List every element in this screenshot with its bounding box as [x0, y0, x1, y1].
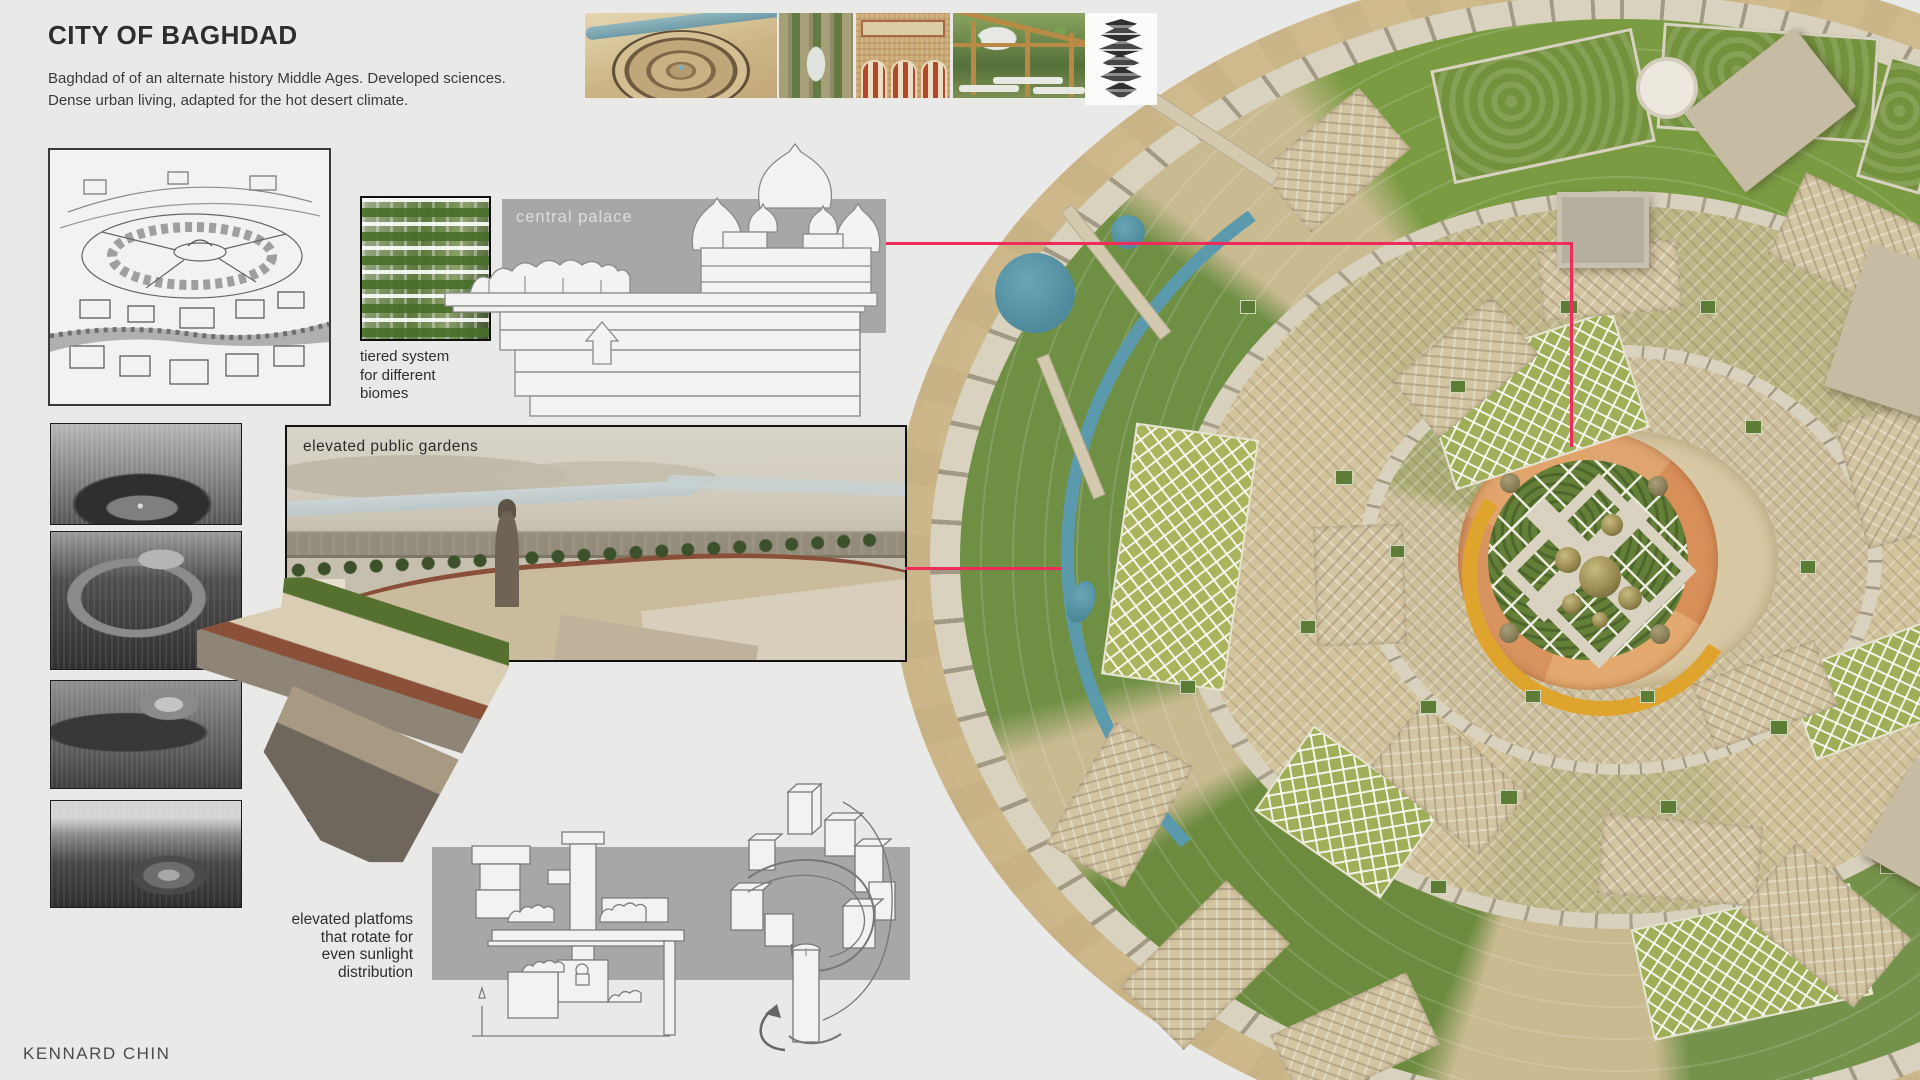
- ref-image-round-city: [585, 13, 777, 98]
- callout-line-gardens: [905, 567, 1062, 570]
- building-cluster: [1313, 523, 1407, 646]
- central-dome: [1579, 556, 1621, 598]
- ref-image-pergola-hydroponics: [953, 13, 1090, 98]
- corner-dome: [1500, 473, 1520, 493]
- ref-image-moorish-arches: [856, 13, 950, 98]
- label-elevated-gardens: elevated public gardens: [303, 438, 478, 456]
- sketch-spiral-tower: [693, 782, 911, 1064]
- ref-image-rotating-mechanism-drawing: [1085, 13, 1157, 105]
- river-graphic: [585, 13, 777, 41]
- corner-dome: [1648, 476, 1668, 496]
- corner-dome: [1499, 623, 1519, 643]
- callout-line-palace-horizontal: [886, 242, 1572, 245]
- label-central-palace: central palace: [516, 208, 633, 227]
- tower-silhouette: [495, 511, 519, 607]
- presentation-board: CITY OF BAGHDAD Baghdad of of an alterna…: [0, 0, 1920, 1080]
- building-cluster: [1597, 813, 1763, 907]
- sketch-platform-elevation: [452, 810, 692, 1050]
- callout-line-palace-vertical: [1570, 242, 1573, 447]
- sketch-central-palace: [405, 140, 905, 420]
- ref-image-terraced-housing: [779, 13, 853, 98]
- pond: [995, 253, 1075, 333]
- corner-dome: [1650, 624, 1670, 644]
